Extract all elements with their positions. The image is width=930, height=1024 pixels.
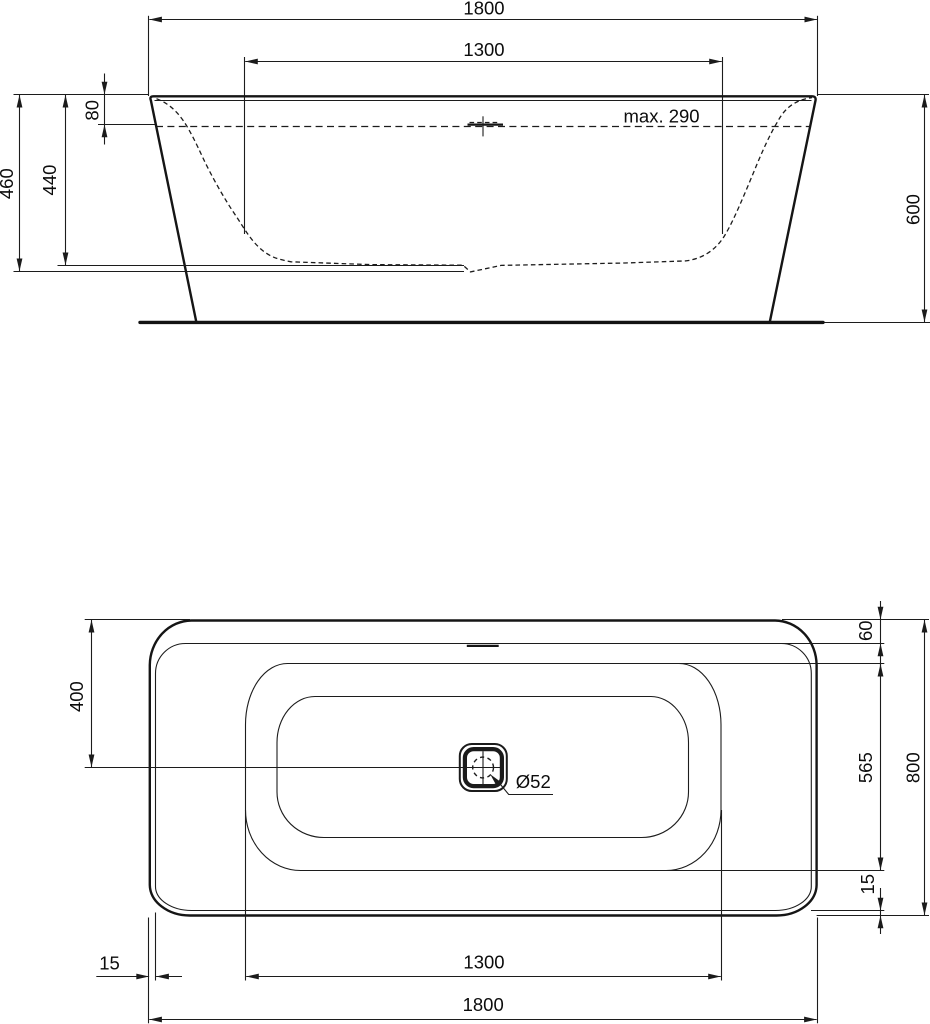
svg-text:60: 60 xyxy=(855,620,876,641)
svg-text:1800: 1800 xyxy=(463,994,504,1015)
svg-text:400: 400 xyxy=(66,681,87,712)
svg-text:565: 565 xyxy=(855,752,876,783)
svg-text:1300: 1300 xyxy=(463,39,504,60)
svg-text:800: 800 xyxy=(902,752,923,783)
svg-text:600: 600 xyxy=(902,194,923,225)
svg-text:1800: 1800 xyxy=(463,0,504,19)
svg-text:460: 460 xyxy=(0,168,17,199)
svg-text:440: 440 xyxy=(39,165,60,196)
svg-text:max. 290: max. 290 xyxy=(624,105,700,126)
svg-text:15: 15 xyxy=(857,874,878,895)
svg-text:1300: 1300 xyxy=(463,952,504,973)
svg-text:Ø52: Ø52 xyxy=(516,771,551,792)
svg-text:80: 80 xyxy=(82,100,103,121)
svg-text:15: 15 xyxy=(99,953,120,974)
